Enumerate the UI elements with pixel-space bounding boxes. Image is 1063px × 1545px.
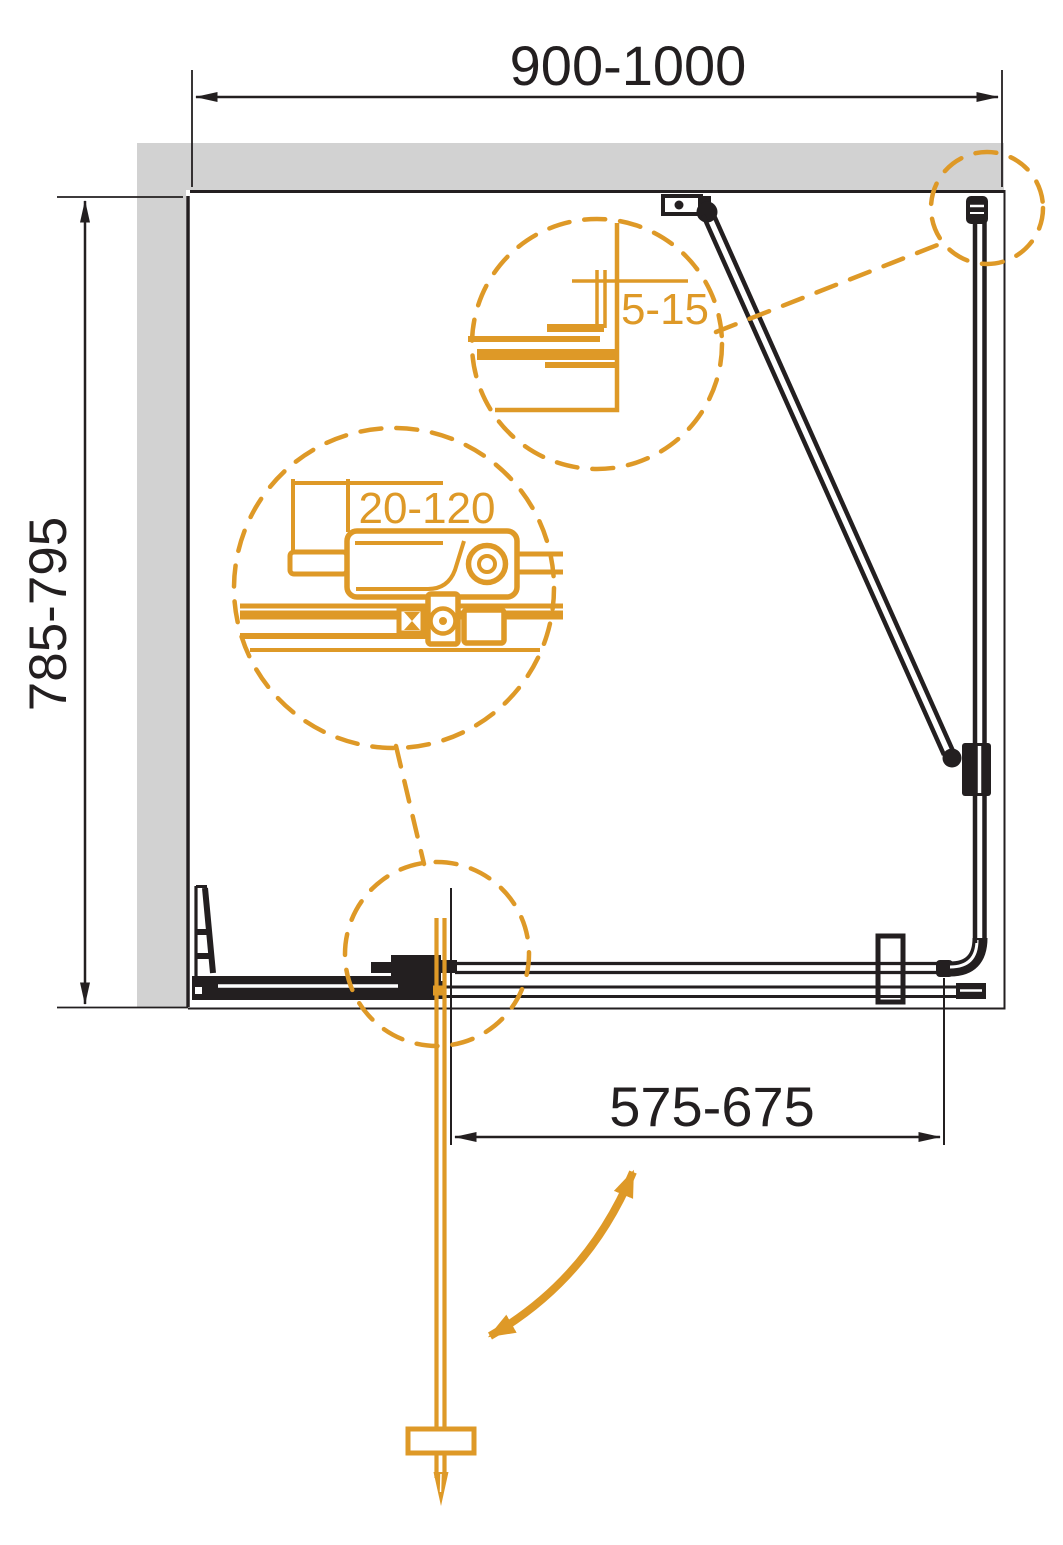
clearance-dim-label: 575-675 <box>609 1075 815 1138</box>
gap-callout-label: 5-15 <box>621 285 709 334</box>
roller-bracket <box>878 936 903 1002</box>
door-swing-arrow <box>490 1172 633 1336</box>
left-wall <box>137 143 186 1007</box>
top-wall <box>137 143 1004 190</box>
adjustment-callout-label: 20-120 <box>358 484 495 533</box>
width-dim-label: 900-1000 <box>510 34 747 97</box>
height-dim-label: 785-795 <box>19 517 78 712</box>
leader-to-guide <box>396 746 424 864</box>
wall-bracket-screw <box>675 201 684 210</box>
plan-drawing-canvas: 900-1000 785-795 <box>0 0 1063 1545</box>
door-closed-orange <box>408 918 474 1506</box>
detail-wall-profile-section: 5-15 <box>468 223 709 410</box>
detail-roller-mechanism: 20-120 <box>240 479 563 650</box>
detail-circle-wall-profile <box>472 219 722 469</box>
shower-enclosure-plan: 900-1000 785-795 <box>0 0 1063 1545</box>
bottom-rail-assembly <box>192 886 986 1002</box>
door-hinge <box>962 743 991 796</box>
panel-top-cap <box>966 196 988 224</box>
door-handle <box>408 1429 474 1453</box>
wall-profile-left <box>196 886 213 977</box>
leader-to-corner <box>716 244 940 332</box>
fixed-side-panel <box>962 196 991 943</box>
door-glass-open <box>703 215 944 755</box>
roller-wheel <box>469 546 506 583</box>
